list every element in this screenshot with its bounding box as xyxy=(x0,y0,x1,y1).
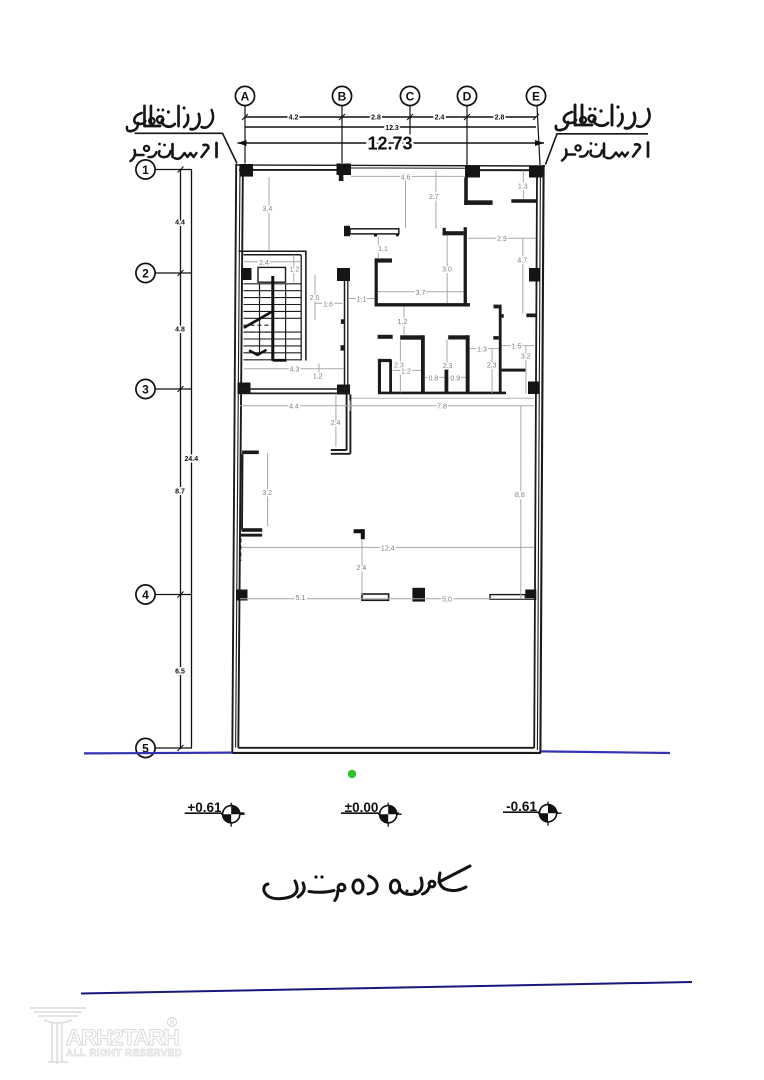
svg-text:2.8: 2.8 xyxy=(495,115,505,122)
svg-text:1: 1 xyxy=(142,163,149,177)
svg-text:1.3: 1.3 xyxy=(518,183,528,190)
svg-text:2.4: 2.4 xyxy=(357,565,367,572)
svg-text:ARH2TARH: ARH2TARH xyxy=(66,1025,178,1050)
svg-text:5,0: 5,0 xyxy=(442,597,452,604)
svg-text:4.7: 4.7 xyxy=(517,257,527,264)
svg-text:2.3: 2.3 xyxy=(443,363,453,370)
svg-text:0.8: 0.8 xyxy=(429,375,439,382)
svg-text:1.6: 1.6 xyxy=(323,301,333,308)
svg-text:2.0: 2.0 xyxy=(310,295,320,302)
svg-text:E: E xyxy=(532,90,540,104)
svg-text:ALL RIGHT RESERVED: ALL RIGHT RESERVED xyxy=(66,1048,182,1059)
svg-text:1.5: 1.5 xyxy=(512,344,522,351)
svg-text:12.3: 12.3 xyxy=(385,125,399,132)
svg-text:2.9: 2.9 xyxy=(497,236,507,243)
svg-text:5.1: 5.1 xyxy=(296,595,306,602)
svg-text:A: A xyxy=(241,90,250,104)
svg-text:0.9: 0.9 xyxy=(450,375,460,382)
svg-text:3,4: 3,4 xyxy=(263,206,273,213)
svg-text:1.2: 1.2 xyxy=(290,267,300,274)
svg-text:2.4: 2.4 xyxy=(435,115,445,122)
svg-text:2.8: 2.8 xyxy=(371,115,381,122)
svg-text:1.1: 1.1 xyxy=(378,246,388,253)
svg-text:24.4: 24.4 xyxy=(184,456,198,463)
svg-text:2.4: 2.4 xyxy=(259,260,269,267)
svg-text:D: D xyxy=(463,90,472,104)
svg-text:1.2: 1.2 xyxy=(401,368,411,375)
svg-text:4.6: 4.6 xyxy=(401,174,411,181)
svg-text:6.5: 6.5 xyxy=(175,669,185,676)
svg-text:3.2: 3.2 xyxy=(262,490,272,497)
svg-text:4.4: 4.4 xyxy=(175,220,185,227)
svg-text:1.1: 1.1 xyxy=(357,297,367,304)
svg-text:8.7: 8.7 xyxy=(175,489,185,496)
svg-text:3.0: 3.0 xyxy=(442,267,452,274)
svg-text:4: 4 xyxy=(142,588,149,602)
svg-text:4.4: 4.4 xyxy=(289,403,299,410)
svg-text:3.7: 3.7 xyxy=(416,290,426,297)
svg-text:1.2: 1.2 xyxy=(313,373,323,380)
svg-text:12,4: 12,4 xyxy=(381,545,395,552)
svg-text:1.2: 1.2 xyxy=(398,319,408,326)
svg-text:2.4: 2.4 xyxy=(331,420,341,427)
svg-text:3.2: 3.2 xyxy=(521,353,531,360)
svg-text:C: C xyxy=(406,90,415,104)
svg-text:2.7: 2.7 xyxy=(429,194,439,201)
svg-text:7.8: 7.8 xyxy=(437,404,447,411)
svg-text:4.2: 4.2 xyxy=(289,115,299,122)
svg-text:8,8: 8,8 xyxy=(515,492,525,499)
svg-text:1.3: 1.3 xyxy=(477,347,487,354)
svg-text:B: B xyxy=(338,90,347,104)
svg-text:4.8: 4.8 xyxy=(175,327,185,334)
svg-text:12.73: 12.73 xyxy=(367,134,412,154)
svg-text:2: 2 xyxy=(142,267,149,281)
svg-text:3: 3 xyxy=(142,383,149,397)
svg-text:R: R xyxy=(170,1020,175,1027)
svg-text:4.3: 4.3 xyxy=(290,367,300,374)
svg-text:2.3: 2.3 xyxy=(487,363,497,370)
